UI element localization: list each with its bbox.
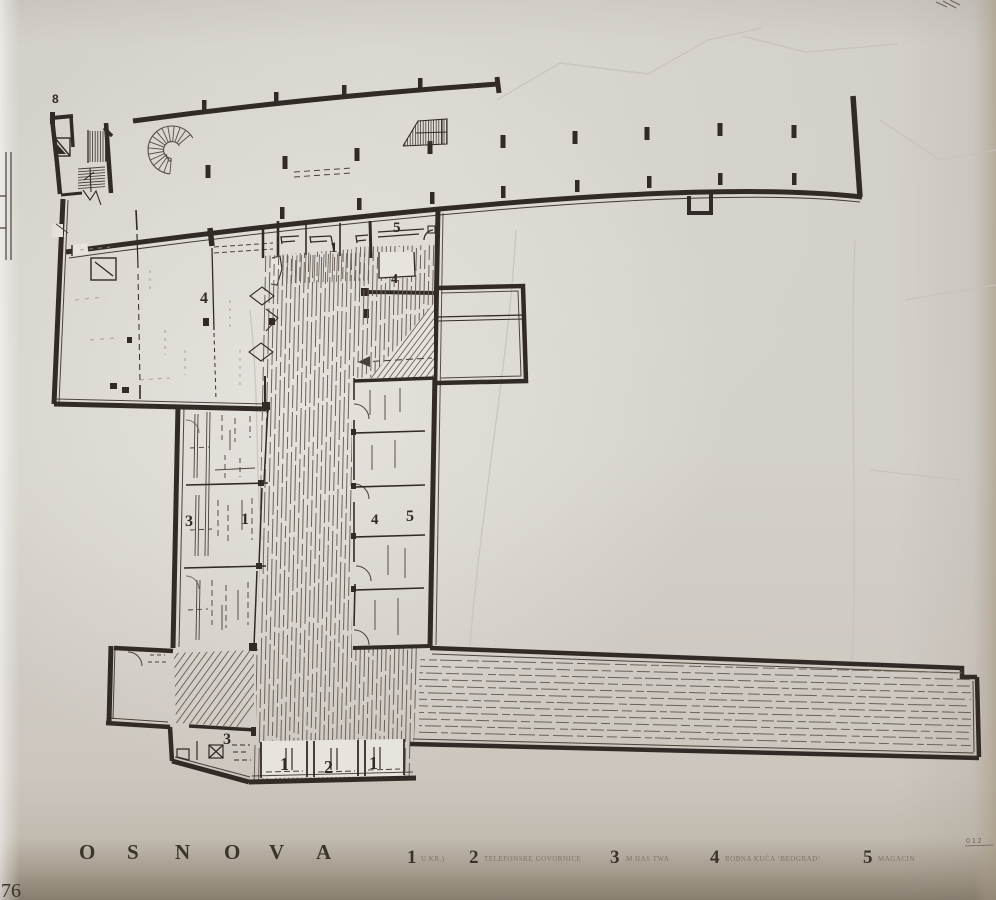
- svg-text:O: O: [224, 840, 240, 864]
- svg-text:4: 4: [710, 847, 720, 868]
- svg-text:MAGACIN: MAGACIN: [878, 855, 915, 863]
- svg-text:4: 4: [371, 512, 379, 528]
- svg-text:0 1 2: 0 1 2: [966, 838, 982, 845]
- svg-text:1: 1: [407, 847, 417, 868]
- svg-text:8: 8: [52, 92, 59, 106]
- svg-text:5: 5: [393, 220, 401, 236]
- svg-text:76: 76: [1, 880, 21, 900]
- svg-text:N: N: [175, 840, 190, 864]
- svg-text:1: 1: [369, 753, 378, 773]
- svg-text:3: 3: [185, 513, 193, 530]
- svg-text:4: 4: [391, 272, 398, 287]
- svg-text:ROBNA KUĆA ‘BEOGRAD’: ROBNA KUĆA ‘BEOGRAD’: [725, 855, 821, 863]
- svg-text:TELEFONSKE GOVORNICE: TELEFONSKE GOVORNICE: [484, 855, 581, 863]
- svg-text:4: 4: [200, 290, 208, 307]
- svg-text:S: S: [127, 840, 139, 864]
- svg-text:1: 1: [280, 754, 289, 774]
- svg-text:A: A: [316, 840, 332, 864]
- svg-text:2: 2: [324, 757, 333, 777]
- svg-text:3: 3: [223, 731, 231, 748]
- svg-text:3: 3: [610, 847, 620, 868]
- svg-text:V: V: [269, 840, 284, 864]
- svg-text:O: O: [79, 840, 95, 864]
- svg-text:2: 2: [469, 847, 479, 868]
- svg-text:U KR.): U KR.): [421, 855, 445, 863]
- svg-text:5: 5: [863, 847, 873, 868]
- svg-text:M HAS TWA: M HAS TWA: [626, 855, 669, 863]
- svg-text:1: 1: [330, 240, 338, 256]
- svg-text:1: 1: [241, 511, 249, 528]
- svg-text:5: 5: [406, 508, 414, 525]
